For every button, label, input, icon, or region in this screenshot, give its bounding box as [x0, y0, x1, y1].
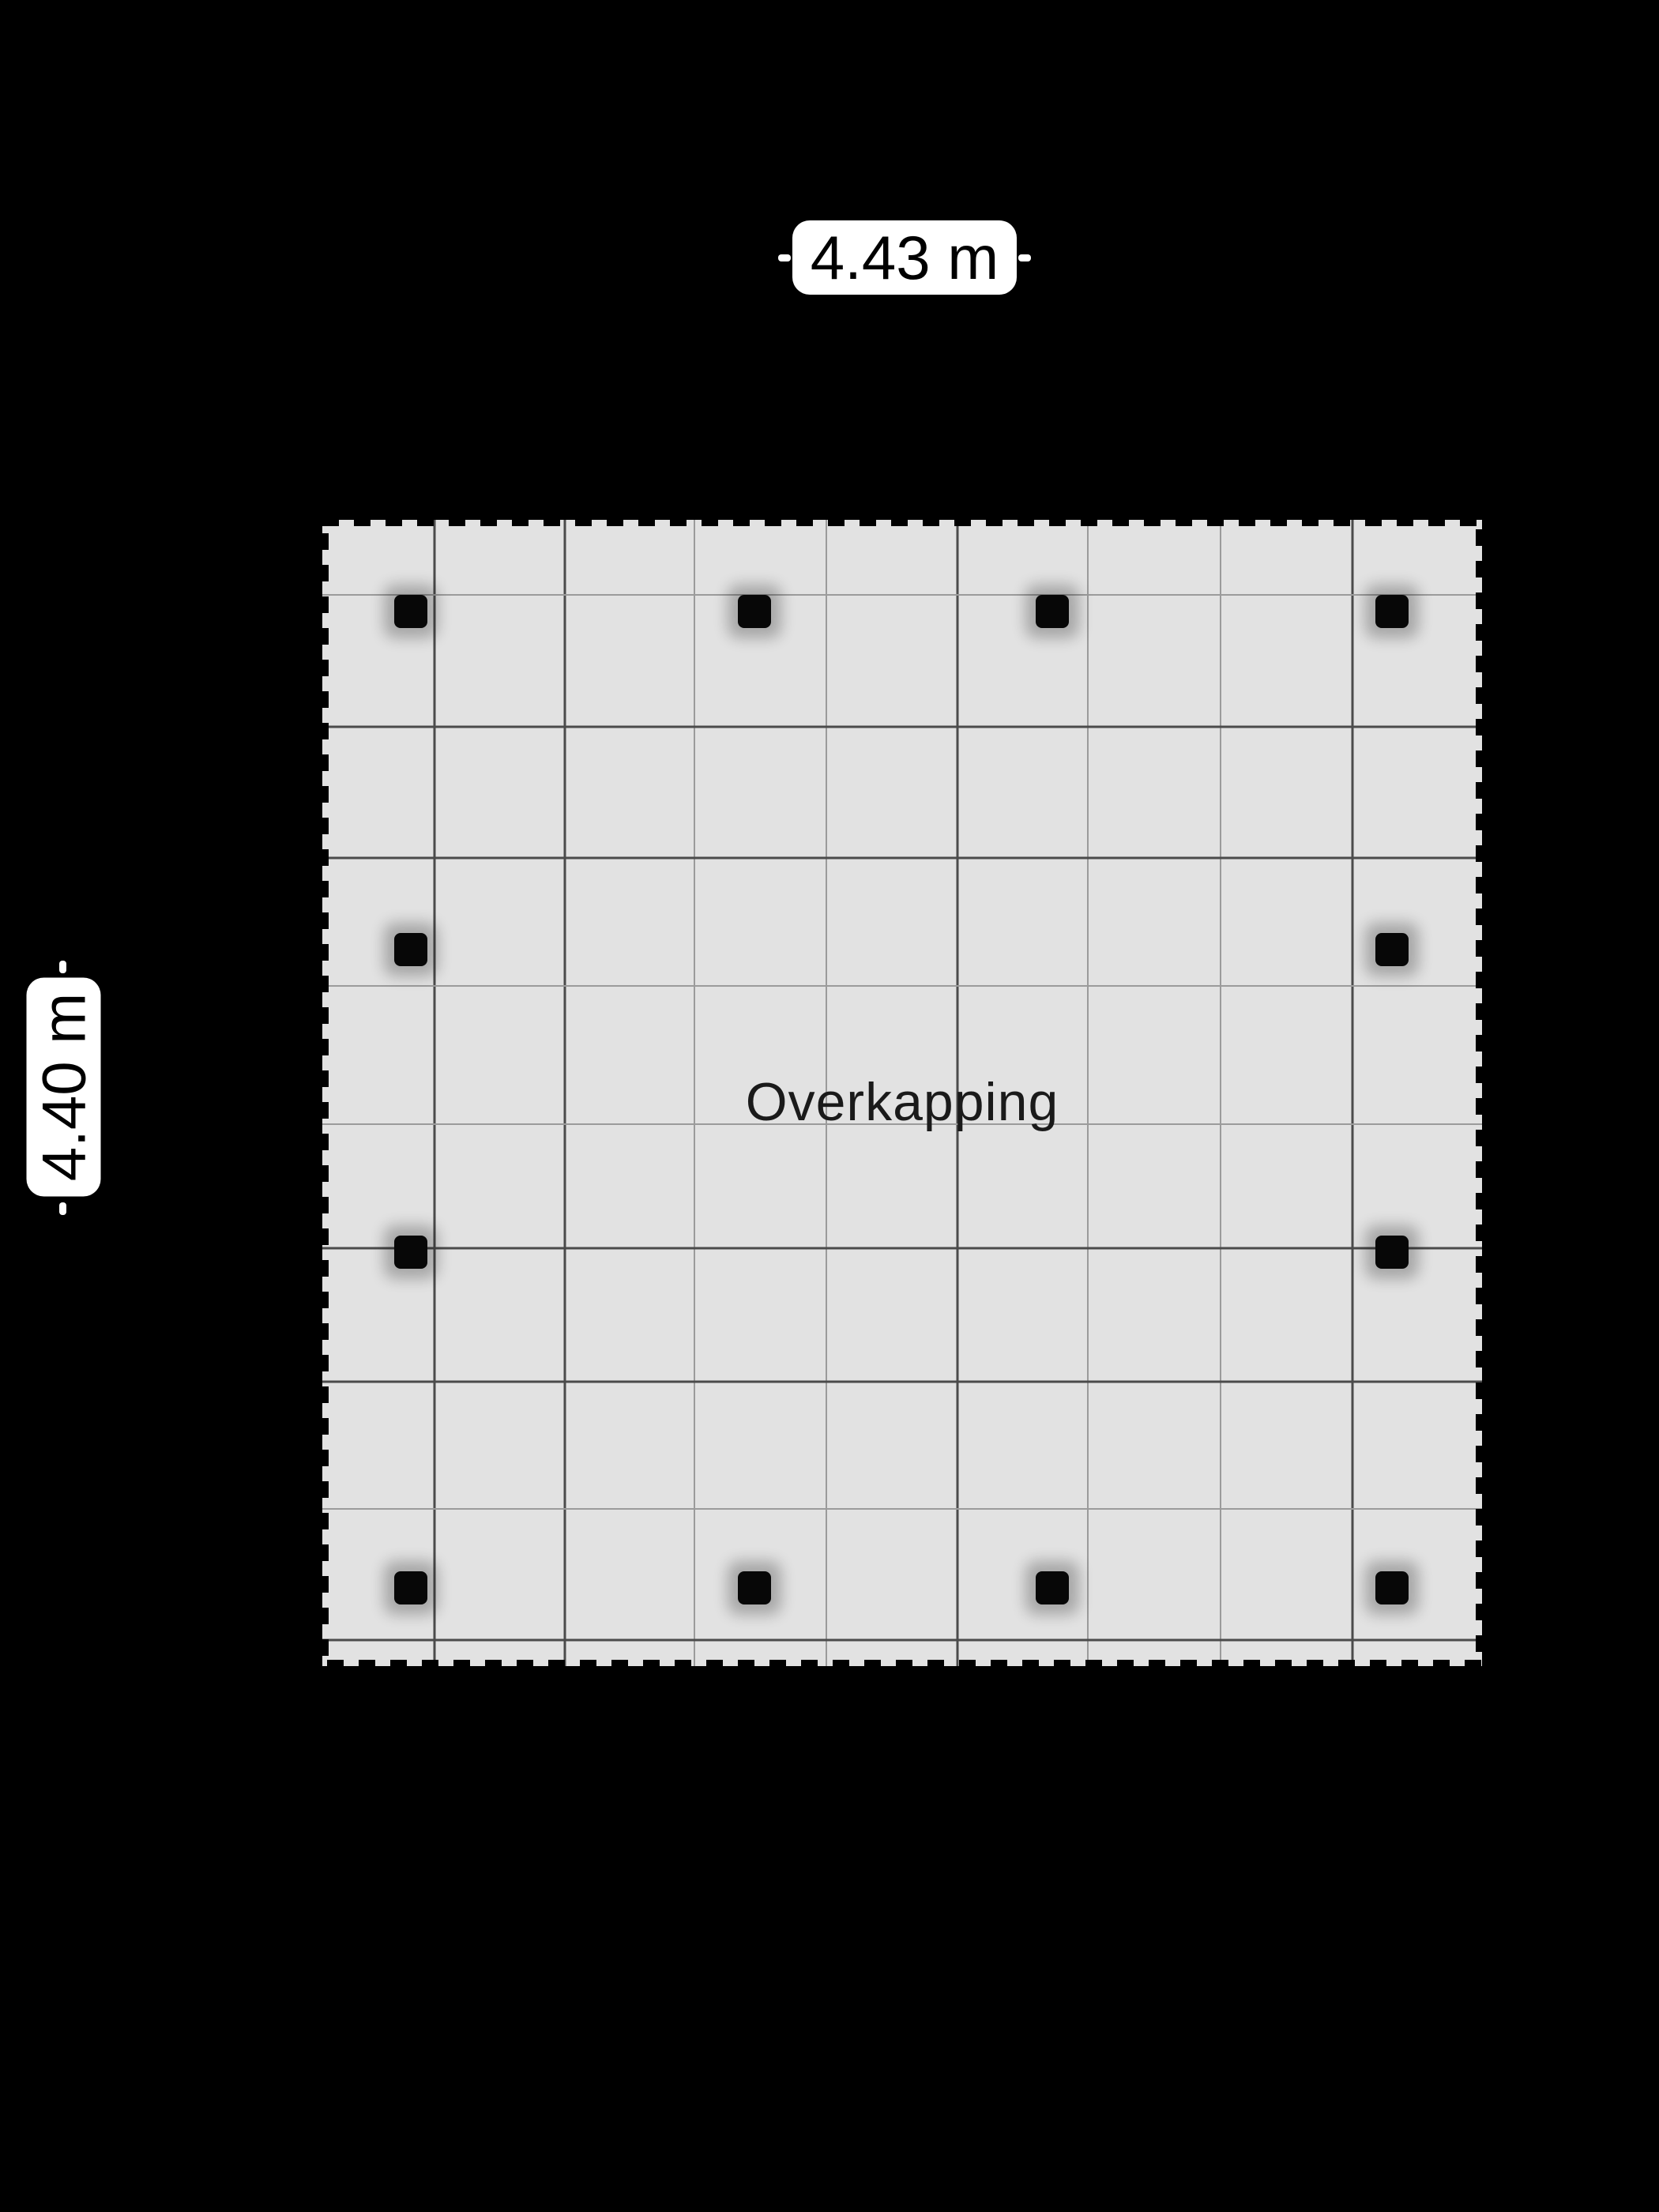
width-dimension-label: 4.43 m [792, 220, 1017, 295]
floorplan-canvas: { "plan": { "label": "Overkapping", "are… [0, 0, 1659, 2212]
height-dimension-label: 4.40 m [27, 978, 101, 1197]
dimension-line-dash [1018, 254, 1031, 261]
canopy-area: Overkapping [322, 520, 1482, 1666]
room-label: Overkapping [746, 1071, 1059, 1133]
dimension-line-dash [59, 961, 66, 973]
dimension-line-dash [59, 1202, 66, 1215]
dimension-line-dash [778, 254, 791, 261]
